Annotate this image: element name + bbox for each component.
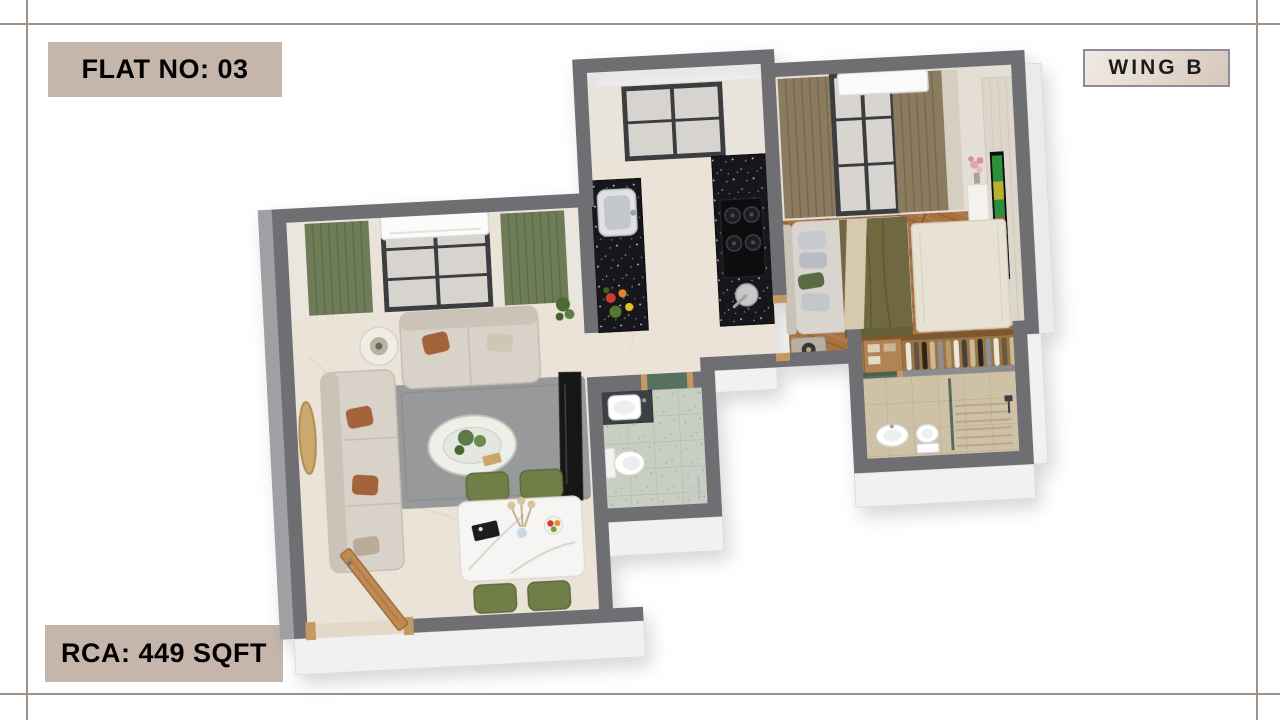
kitchen-counter-left — [591, 178, 649, 332]
long-sofa — [320, 369, 404, 573]
two-seat-sofa — [399, 306, 541, 389]
dining-chair — [474, 583, 517, 613]
living-room-back-wall — [286, 206, 583, 319]
door-jamb — [773, 295, 787, 304]
shower-head — [1004, 395, 1012, 401]
page-background: FLAT NO: 03 WING B RCA: 449 SQFT — [0, 0, 1280, 720]
dining-chair — [520, 469, 563, 499]
kitchen-island — [711, 154, 774, 327]
fruit-bowl — [544, 516, 563, 535]
floor-plan-render — [0, 0, 1280, 720]
bedroom-rug — [911, 219, 1011, 332]
master-toilet — [916, 424, 939, 453]
dining-chair — [527, 581, 570, 611]
door-jamb — [776, 353, 790, 362]
ac-unit-bedroom — [837, 69, 928, 96]
apartment-unit — [251, 35, 1071, 676]
bath-door-jamb — [897, 371, 903, 377]
bath-door-jamb — [687, 372, 694, 388]
dining-table — [457, 494, 585, 582]
dining-chair — [466, 472, 509, 502]
bedroom — [773, 65, 1026, 365]
bath-glass-door — [647, 372, 688, 390]
door-jamb — [305, 622, 316, 640]
bath-door-jamb — [641, 374, 648, 390]
bed — [781, 216, 913, 340]
